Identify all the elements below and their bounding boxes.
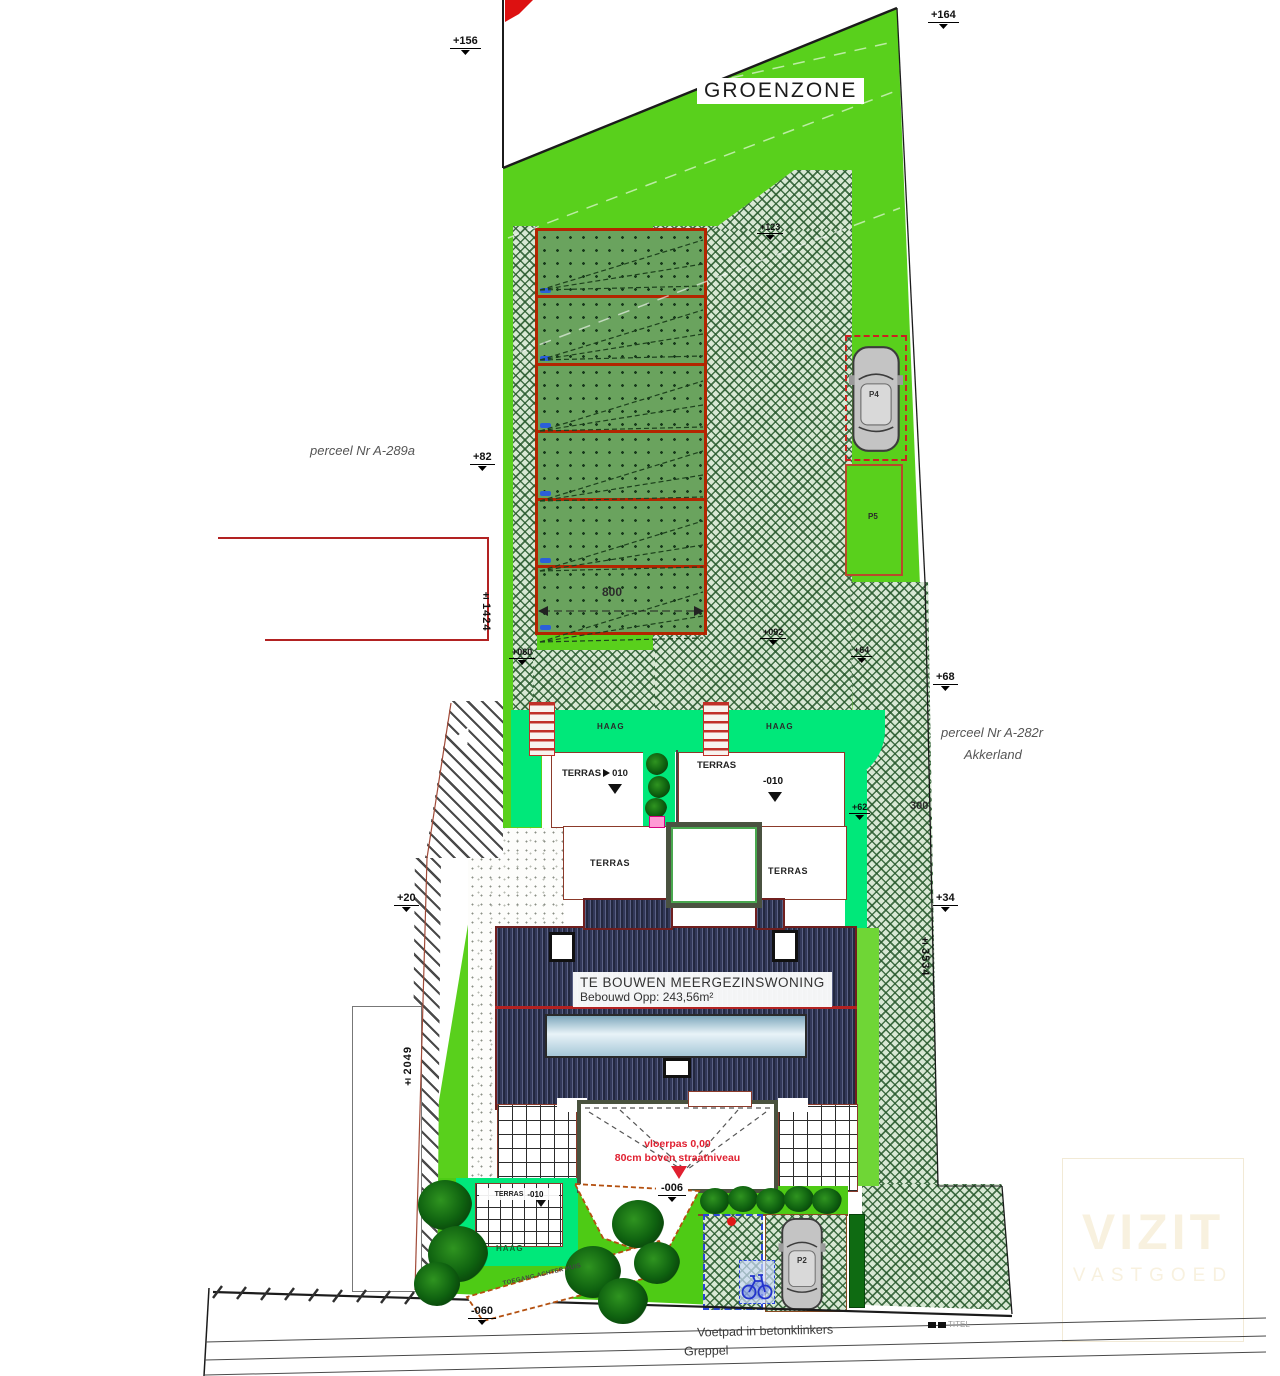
haag-garden-label: HAAG	[496, 1244, 524, 1253]
marker-006-label: -006	[658, 1183, 686, 1196]
titel-marker: TITEL	[928, 1320, 970, 1329]
marker-68: +68	[933, 672, 958, 691]
marker-123-label: +123	[757, 223, 783, 234]
haag-right-label: HAAG	[766, 722, 794, 731]
roof-window-left	[549, 932, 575, 962]
benchmark-icon	[939, 24, 948, 29]
haag-band-right	[729, 710, 833, 752]
divider-plant-3	[645, 798, 667, 818]
benchmark-icon	[769, 640, 778, 645]
car-p4	[849, 340, 903, 458]
hatch-bottom-right	[862, 1184, 1012, 1314]
ditch-label: Greppel	[684, 1343, 729, 1358]
divider-plant-1	[646, 753, 668, 775]
terrace-tl-triangle	[608, 784, 622, 794]
benchmark-icon	[941, 907, 950, 912]
stairs-left	[529, 702, 555, 756]
building-title-box: TE BOUWEN MEERGEZINSWONING Bebouwd Opp: …	[573, 972, 832, 1007]
dim-300: 300	[910, 800, 928, 812]
benchmark-icon	[941, 686, 950, 691]
bush	[418, 1180, 472, 1230]
roof-window-right	[772, 930, 798, 962]
terrace-tr-triangle	[768, 792, 782, 802]
benchmark-icon	[402, 907, 411, 912]
terrace-br-label: TERRAS	[768, 866, 808, 876]
red-flag-icon	[505, 0, 533, 22]
parcel-right-label-1: perceel Nr A-282r	[941, 725, 1043, 740]
roof-window-center	[663, 1058, 691, 1078]
haag-left-label: HAAG	[597, 722, 625, 731]
skylight-band	[545, 1014, 807, 1058]
marker-156: +156	[450, 36, 481, 55]
terrace-tr-level: -010	[763, 776, 783, 787]
hatch-strip-left-of-plots	[513, 226, 537, 714]
garden-plot-6	[535, 565, 707, 635]
marker-092: +092	[760, 628, 786, 645]
p2-label: P2	[797, 1256, 807, 1265]
garden-plot-5	[535, 498, 707, 568]
terrace-tl-text: TERRAS	[562, 768, 601, 779]
bush	[634, 1242, 680, 1284]
benchmark-icon	[461, 50, 470, 55]
dim-2049: ±2049	[402, 1046, 414, 1087]
hedge-bush	[700, 1188, 730, 1214]
marker-68-label: +68	[933, 672, 958, 685]
floor-level-triangle	[671, 1166, 687, 1179]
garden-plot-1	[535, 228, 707, 298]
bush	[414, 1262, 460, 1306]
divider-fence-line	[676, 750, 678, 830]
marker-20: +20	[394, 893, 419, 912]
marker-62-label: +62	[849, 803, 870, 814]
bush	[598, 1278, 648, 1324]
marker-64: +64	[851, 646, 872, 663]
marker-156-label: +156	[450, 36, 481, 49]
floor-level-text-1: vloerpas 0,00	[577, 1138, 778, 1150]
p5-label: P5	[868, 512, 878, 521]
tile-terrace-right-wing	[778, 1104, 858, 1192]
marker-006: -006	[656, 1182, 688, 1203]
divider-plant-2	[648, 776, 670, 798]
benchmark-icon	[478, 466, 487, 471]
terrace-top-left	[551, 752, 645, 828]
arrow-right-icon	[603, 769, 610, 777]
benchmark-icon	[766, 235, 775, 240]
parcel-left-label: perceel Nr A-289a	[310, 443, 415, 458]
marker-060b-label: -060	[468, 1306, 496, 1319]
entrance-notch	[688, 1091, 752, 1107]
haag-right-vertical	[845, 770, 867, 928]
dim-1424: ±1424	[480, 590, 492, 631]
marker-62: +62	[849, 803, 870, 820]
bicycle-icon	[740, 1262, 774, 1302]
right-green-strip	[857, 928, 879, 1186]
red-outline-structure	[216, 536, 492, 644]
gravel-strip-left-of-building	[468, 928, 498, 1190]
pink-utility-box	[649, 816, 665, 828]
dim-800: 800	[602, 585, 622, 599]
marker-092-label: +092	[760, 628, 786, 639]
stairs-right	[703, 702, 729, 756]
site-plan: P4 P5 vloerpas 0,00 80cm boven straatniv…	[0, 0, 1280, 1376]
building-area: Bebouwd Opp: 243,56m²	[580, 990, 825, 1004]
marker-060-label: +060	[509, 648, 535, 659]
parcel-right-label-2: Akkerland	[964, 747, 1022, 762]
hedge-bush	[784, 1186, 814, 1212]
marker-82: +82	[470, 452, 495, 471]
bush	[612, 1200, 664, 1248]
marker-20-label: +20	[394, 893, 419, 906]
titel-text: TITEL	[948, 1320, 970, 1329]
marker-123: +123	[757, 223, 783, 240]
garden-plot-4	[535, 430, 707, 500]
terrace-bl-label: TERRAS	[590, 858, 630, 868]
titel-glyph-icon	[938, 1322, 946, 1328]
benchmark-icon	[518, 660, 527, 665]
floor-level-text-2: 80cm boven straatniveau	[577, 1152, 778, 1164]
garden-plot-3	[535, 363, 707, 433]
marker-34: +34	[933, 893, 958, 912]
marker-82-label: +82	[470, 452, 495, 465]
marker-164: +164	[928, 10, 959, 29]
garden-terrace-level: -010	[527, 1190, 543, 1199]
building-bump-left	[583, 898, 673, 930]
building-title: TE BOUWEN MEERGEZINSWONING	[580, 975, 825, 990]
garden-terrace-label-strip: TERRAS -010	[479, 1188, 559, 1200]
garden-terrace-triangle	[536, 1200, 546, 1207]
hedge-bush	[728, 1186, 758, 1212]
watermark-box: VIZIT VASTGOED	[1062, 1158, 1244, 1342]
hedge-bush	[812, 1188, 842, 1214]
hedge-bush	[756, 1188, 786, 1214]
benchmark-icon	[857, 658, 866, 663]
marker-060: +060	[509, 648, 535, 665]
benchmark-icon	[855, 815, 864, 820]
red-point-marker	[727, 1217, 736, 1226]
groenzone-label: GROENZONE	[697, 78, 864, 104]
terrace-tl-label: TERRAS010	[562, 768, 628, 779]
watermark-line2: VASTGOED	[1063, 1265, 1243, 1287]
dark-hedge-strip	[849, 1214, 865, 1308]
titel-glyph-icon	[928, 1322, 936, 1328]
p4-label: P4	[869, 390, 879, 399]
marker-34-label: +34	[933, 893, 958, 906]
garden-terrace-label: TERRAS	[495, 1191, 524, 1198]
terrace-tl-level: 010	[612, 768, 628, 779]
stairwell-box	[666, 822, 762, 908]
benchmark-icon	[668, 1197, 677, 1202]
marker-64-label: +64	[851, 646, 872, 657]
terrace-tr-label: TERRAS	[697, 760, 736, 771]
garden-plot-2	[535, 295, 707, 365]
watermark-line1: VIZIT	[1063, 1203, 1243, 1261]
marker-164-label: +164	[928, 10, 959, 23]
dim-3534: ±3534	[919, 935, 931, 976]
marker-060b: -060	[468, 1306, 496, 1325]
benchmark-icon	[478, 1320, 487, 1325]
building-notch-right	[778, 1098, 808, 1112]
sidewalk-label: Voetpad in betonklinkers	[697, 1322, 834, 1339]
